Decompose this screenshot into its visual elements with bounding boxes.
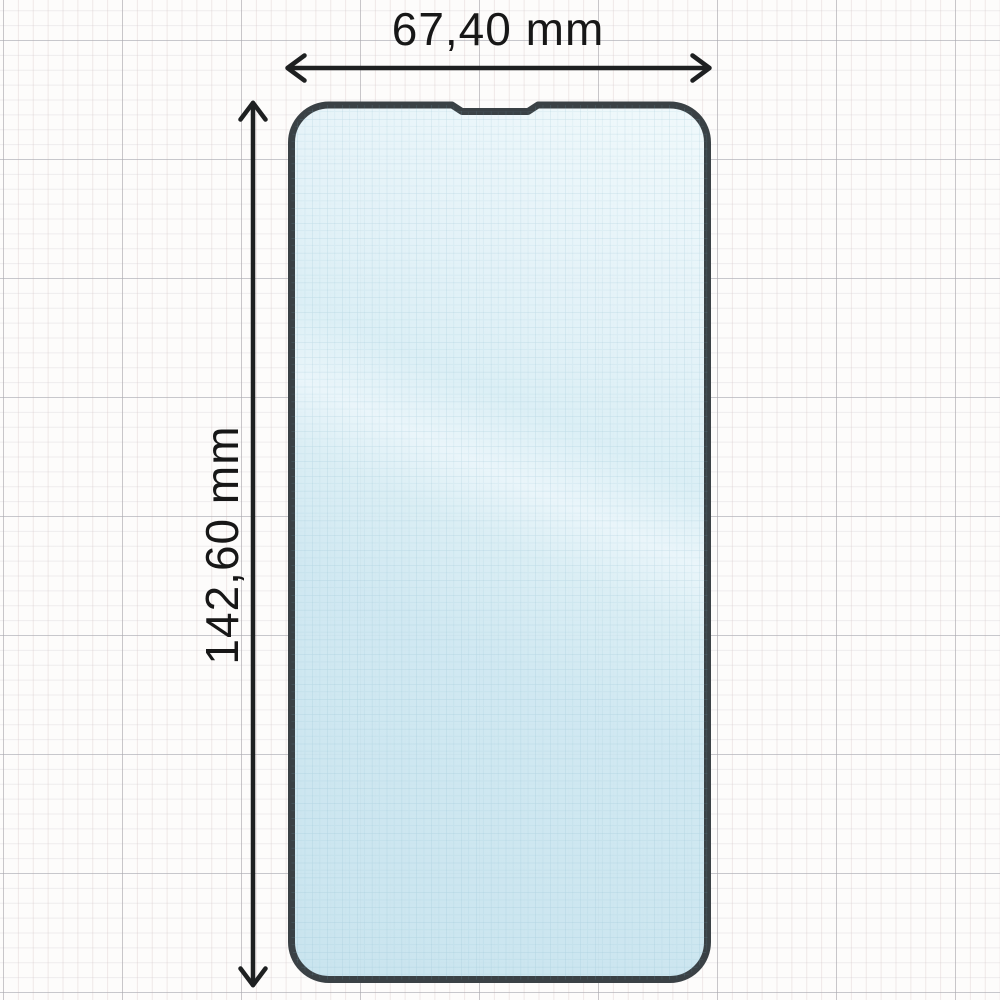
glass-texture-grid bbox=[292, 105, 708, 980]
diagram-artwork bbox=[0, 0, 1000, 1000]
width-dimension-arrow bbox=[288, 56, 710, 81]
height-dimension-label: 142,60 mm bbox=[195, 425, 249, 664]
dimension-diagram: 67,40 mm 142,60 mm bbox=[0, 0, 1000, 1000]
screen-protector-glass bbox=[292, 105, 708, 980]
width-dimension-label: 67,40 mm bbox=[392, 2, 605, 56]
